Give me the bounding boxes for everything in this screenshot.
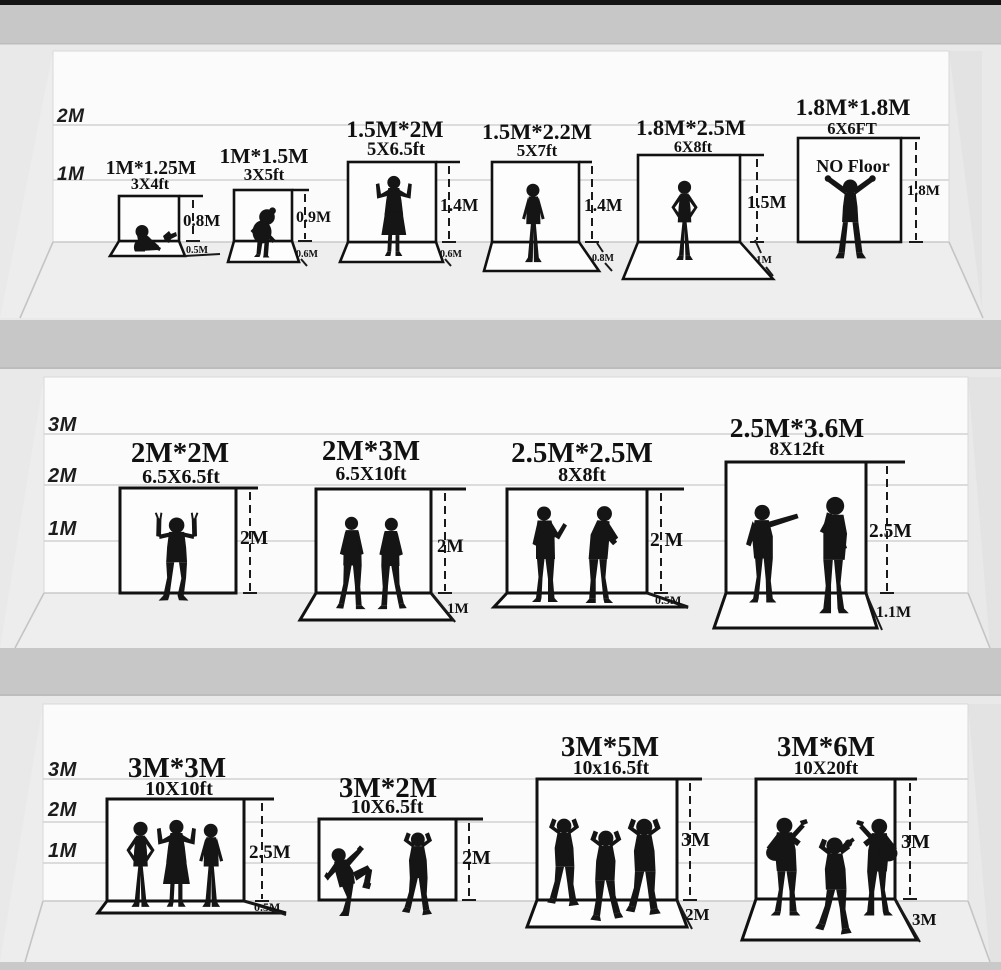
svg-text:2M: 2M xyxy=(240,528,268,549)
svg-text:6.5X10ft: 6.5X10ft xyxy=(336,464,407,485)
svg-text:0.5M: 0.5M xyxy=(186,245,209,256)
svg-text:3M: 3M xyxy=(48,414,78,436)
svg-text:3X5ft: 3X5ft xyxy=(244,165,285,184)
svg-text:1.4M: 1.4M xyxy=(584,195,623,215)
svg-text:2.5M: 2.5M xyxy=(249,842,291,863)
svg-text:0.5M: 0.5M xyxy=(655,593,681,607)
svg-text:3M: 3M xyxy=(901,831,930,853)
svg-text:0.8M: 0.8M xyxy=(183,211,220,230)
svg-text:3M: 3M xyxy=(48,759,78,781)
svg-text:2M: 2M xyxy=(685,905,710,924)
svg-text:1M: 1M xyxy=(57,164,85,185)
svg-text:1.5M: 1.5M xyxy=(747,192,787,212)
svg-text:2M*3M: 2M*3M xyxy=(322,435,420,467)
svg-text:8X12ft: 8X12ft xyxy=(770,439,826,460)
svg-text:1.8M*1.8M: 1.8M*1.8M xyxy=(796,95,911,121)
svg-text:10X6.5ft: 10X6.5ft xyxy=(351,796,424,818)
svg-text:1M: 1M xyxy=(48,840,78,862)
svg-text:6X8ft: 6X8ft xyxy=(674,139,713,156)
svg-text:0.8M: 0.8M xyxy=(592,253,615,264)
svg-text:0.5M: 0.5M xyxy=(254,900,280,914)
svg-text:5X7ft: 5X7ft xyxy=(517,141,558,160)
svg-text:2M: 2M xyxy=(47,799,78,821)
svg-text:NO Floor: NO Floor xyxy=(816,156,890,176)
svg-text:0.6M: 0.6M xyxy=(296,249,319,260)
svg-text:1.8M: 1.8M xyxy=(907,183,940,199)
svg-text:3M: 3M xyxy=(681,829,710,851)
svg-text:10X20ft: 10X20ft xyxy=(794,758,859,779)
svg-text:2M: 2M xyxy=(56,106,85,127)
svg-text:1.8M*2.5M: 1.8M*2.5M xyxy=(636,115,746,140)
svg-text:1M: 1M xyxy=(48,518,78,540)
svg-text:2M: 2M xyxy=(47,465,78,487)
svg-text:0.6M: 0.6M xyxy=(440,249,463,260)
svg-text:2.5M: 2.5M xyxy=(869,521,912,542)
svg-text:6.5X6.5ft: 6.5X6.5ft xyxy=(142,466,220,488)
svg-text:0.9M: 0.9M xyxy=(296,209,331,226)
svg-text:10X10ft: 10X10ft xyxy=(145,778,213,800)
svg-text:1.4M: 1.4M xyxy=(440,195,479,215)
svg-text:5X6.5ft: 5X6.5ft xyxy=(367,140,426,160)
svg-text:1.1M: 1.1M xyxy=(876,604,911,621)
svg-text:2M: 2M xyxy=(437,537,464,557)
svg-text:3X4ft: 3X4ft xyxy=(131,176,170,193)
svg-text:3M: 3M xyxy=(912,910,937,929)
svg-text:2M: 2M xyxy=(462,847,491,869)
svg-text:2 M: 2 M xyxy=(650,530,683,551)
svg-text:6X6FT: 6X6FT xyxy=(827,119,877,138)
svg-text:1M: 1M xyxy=(756,254,773,266)
svg-text:8X8ft: 8X8ft xyxy=(558,464,606,486)
svg-text:10x16.5ft: 10x16.5ft xyxy=(573,758,650,779)
svg-text:2M*2M: 2M*2M xyxy=(131,437,229,469)
svg-text:1M: 1M xyxy=(447,601,469,617)
